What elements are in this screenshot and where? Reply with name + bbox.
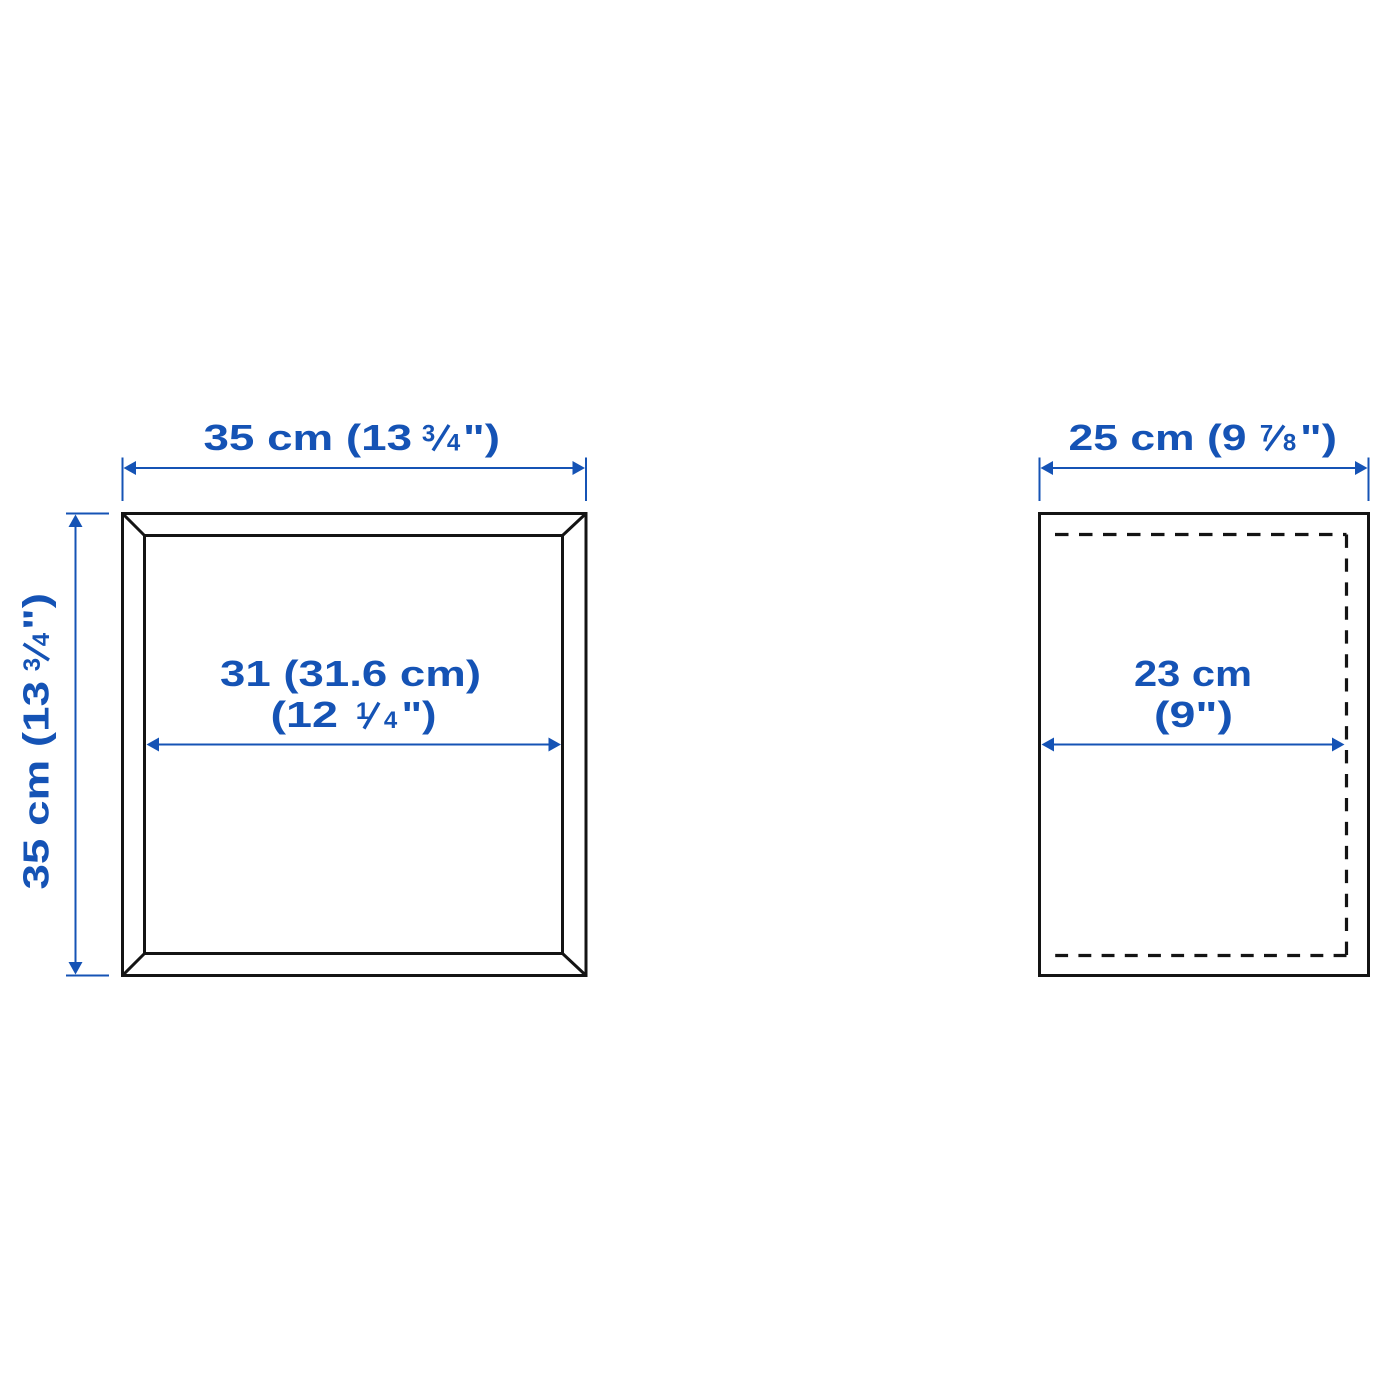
svg-text:25 cm (9: 25 cm (9 <box>1069 417 1247 458</box>
svg-text:8: 8 <box>1283 430 1296 457</box>
svg-text:4: 4 <box>384 707 398 734</box>
svg-text:"): ") <box>402 694 437 735</box>
svg-text:"): ") <box>1300 417 1337 458</box>
svg-text:(9"): (9") <box>1154 694 1233 735</box>
svg-text:23 cm: 23 cm <box>1134 653 1252 694</box>
svg-text:31 (31.6 cm): 31 (31.6 cm) <box>220 653 481 694</box>
svg-text:(12: (12 <box>271 694 339 735</box>
